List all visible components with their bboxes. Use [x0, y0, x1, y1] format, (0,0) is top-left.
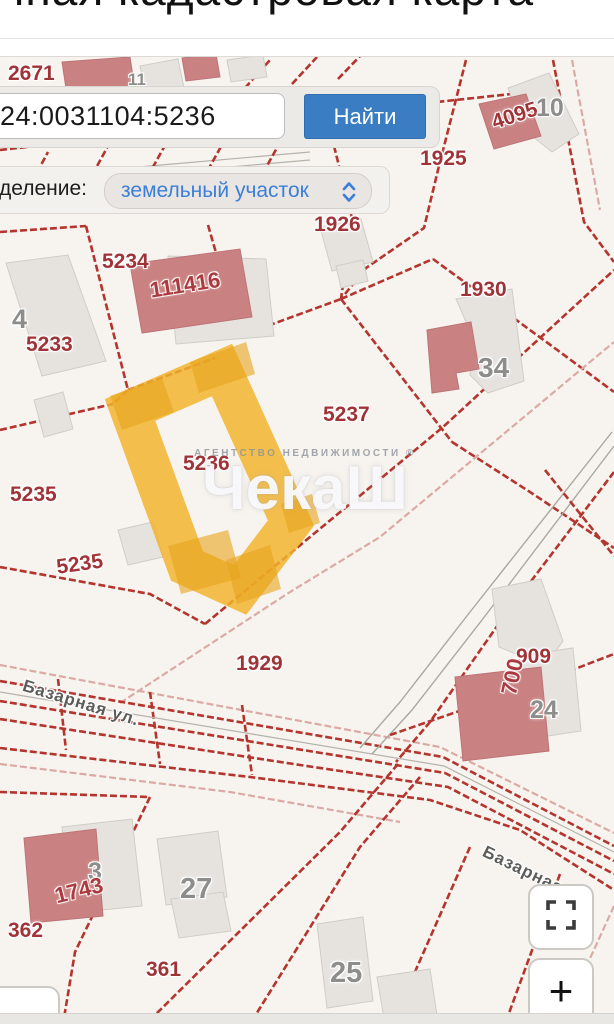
building-capital	[24, 829, 103, 923]
parcel-type-select[interactable]: земельный участок	[104, 173, 372, 209]
header: Публичная кадастровая карта	[0, 0, 614, 57]
search-button[interactable]: Найти	[304, 94, 426, 139]
map-canvas[interactable]	[0, 0, 614, 1024]
filter-label: деление:	[0, 177, 87, 201]
map-top-border	[0, 56, 614, 57]
search-panel: Найти	[0, 86, 440, 148]
cadastral-map-page: 2671111925409510192652341114164523319303…	[0, 0, 614, 1024]
filter-panel: деление: земельный участок	[0, 166, 390, 214]
building	[171, 892, 231, 938]
bottom-edge-bar	[0, 1013, 614, 1024]
header-divider	[0, 38, 614, 39]
page-title: Публичная кадастровая карта	[0, 0, 534, 15]
chevron-up-down-icon	[341, 181, 357, 208]
fullscreen-button[interactable]	[528, 884, 594, 950]
building-capital	[182, 54, 220, 81]
search-input[interactable]	[0, 93, 285, 139]
building	[317, 917, 373, 1008]
fullscreen-icon	[543, 897, 579, 938]
parcel-type-value: земельный участок	[121, 179, 309, 203]
building	[227, 55, 267, 82]
building-capital	[455, 667, 549, 761]
